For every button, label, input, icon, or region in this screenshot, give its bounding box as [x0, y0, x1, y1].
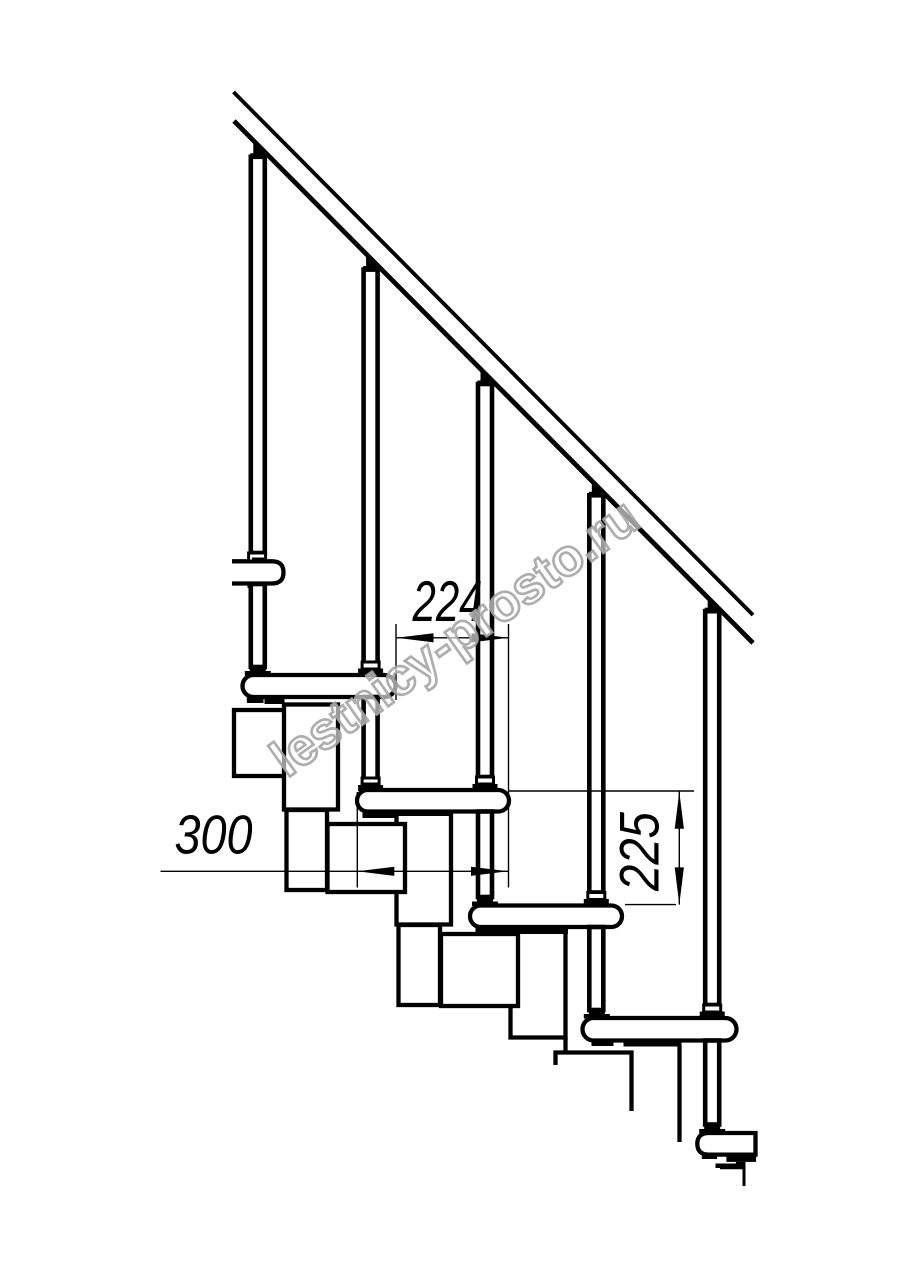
svg-text:300: 300: [175, 804, 253, 866]
svg-text:225: 225: [608, 811, 671, 892]
